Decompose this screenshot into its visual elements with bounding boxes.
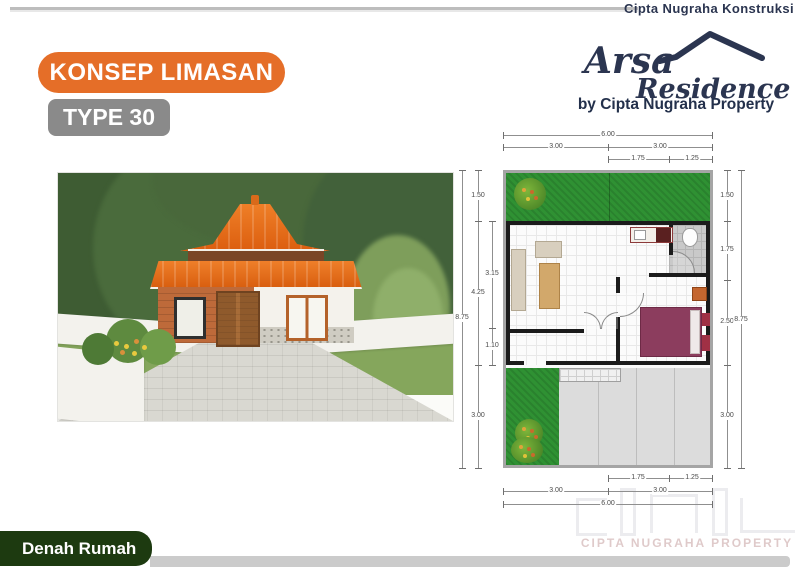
bed-pillows <box>690 310 700 354</box>
dim-label: 3.15 <box>484 270 500 278</box>
dim-label: 3.00 <box>652 143 668 151</box>
wall <box>506 221 710 225</box>
plan-bush <box>511 437 543 463</box>
carport-joint-line <box>598 368 599 465</box>
dimension-tick <box>475 170 482 171</box>
dim-label: 4.25 <box>470 289 486 297</box>
dimension-tick <box>489 365 496 366</box>
dimension-tick <box>608 488 609 495</box>
wall <box>506 329 584 333</box>
dimension-tick <box>724 170 731 171</box>
nightstand <box>702 313 710 326</box>
watermark-logo: CIPTA NUGRAHA PROPERTY <box>572 488 802 554</box>
awning-roof <box>150 261 362 289</box>
nightstand-lamp <box>692 287 707 301</box>
dimension-tick <box>489 221 496 222</box>
dimension-tick <box>738 468 745 469</box>
wooden-front-door <box>216 291 260 347</box>
floor-plan <box>503 170 713 468</box>
dimension-tick <box>669 475 670 482</box>
dim-label: 3.00 <box>548 487 564 495</box>
dimension-tick <box>712 475 713 482</box>
footer-caption: Denah Rumah <box>22 539 136 559</box>
wall <box>506 361 524 365</box>
dimension-tick <box>503 132 504 139</box>
dimension-tick <box>724 221 731 222</box>
dimension-tick <box>712 488 713 495</box>
dim-label: 1.25 <box>684 155 700 163</box>
dimension-tick <box>459 170 466 171</box>
dim-label: 3.00 <box>470 412 486 420</box>
plan-carport <box>559 368 710 465</box>
type-badge: TYPE 30 <box>48 99 170 136</box>
wall <box>649 273 710 277</box>
plan-garden-divider <box>609 173 610 221</box>
nightstand <box>702 335 710 351</box>
dimension-tick <box>503 501 504 508</box>
kitchen-sink <box>634 230 646 240</box>
dim-label: 1.10 <box>484 342 500 350</box>
garden-shrub <box>82 333 114 365</box>
flyer-page: Cipta Nugraha Konstruksi KONSEP LIMASAN … <box>0 0 804 568</box>
dimension-tick <box>712 132 713 139</box>
left-window <box>174 297 206 339</box>
dim-label: 1.75 <box>630 474 646 482</box>
dim-label: 8.75 <box>733 316 749 324</box>
dimension-tick <box>475 365 482 366</box>
armchair <box>535 241 562 258</box>
watermark-text: CIPTA NUGRAHA PROPERTY <box>572 536 802 550</box>
logo-byline: by Cipta Nugraha Property <box>556 96 796 114</box>
watermark-monogram <box>712 488 728 536</box>
dimension-tick <box>724 365 731 366</box>
dim-label: 1.50 <box>470 192 486 200</box>
dim-label: 6.00 <box>600 500 616 508</box>
plan-terrace-step <box>559 368 621 382</box>
watermark-monogram <box>740 498 795 533</box>
watermark-monogram <box>650 494 698 533</box>
concept-badge: KONSEP LIMASAN <box>38 52 285 93</box>
dimension-tick <box>669 156 670 163</box>
carport-joint-line <box>674 368 675 465</box>
dimension-tick <box>608 475 609 482</box>
flower-accents <box>114 341 119 346</box>
dimension-tick <box>475 468 482 469</box>
wall <box>506 225 510 365</box>
wall <box>546 361 710 365</box>
dimension-tick <box>712 501 713 508</box>
dimension-line <box>478 170 479 468</box>
dimension-tick <box>712 156 713 163</box>
dim-label: 3.00 <box>652 487 668 495</box>
dim-label: 6.00 <box>600 131 616 139</box>
dimension-tick <box>489 328 496 329</box>
dim-label: 8.75 <box>454 314 470 322</box>
dim-label: 1.75 <box>719 246 735 254</box>
house-render-image <box>57 172 454 422</box>
dim-label: 1.25 <box>684 474 700 482</box>
coffee-table <box>539 263 560 309</box>
dimension-tick <box>724 468 731 469</box>
watermark-monogram <box>620 488 636 536</box>
roof-finial <box>251 195 259 205</box>
dimension-tick <box>712 144 713 151</box>
upper-limasan-roof <box>180 201 330 251</box>
toilet <box>682 228 698 247</box>
dimension-tick <box>738 170 745 171</box>
wall <box>616 277 620 293</box>
dimension-tick <box>475 221 482 222</box>
dim-label: 1.75 <box>630 155 646 163</box>
right-window <box>286 295 328 341</box>
dimension-tick <box>503 488 504 495</box>
dim-label: 3.00 <box>719 412 735 420</box>
dimension-tick <box>724 280 731 281</box>
plan-bush <box>514 178 546 210</box>
footer-gray-bar <box>150 556 790 567</box>
sofa <box>511 249 526 311</box>
garden-shrub <box>140 329 176 365</box>
dimension-tick <box>503 144 504 151</box>
dim-label: 1.50 <box>719 192 735 200</box>
stove <box>656 228 671 242</box>
dimension-tick <box>608 156 609 163</box>
house-structure <box>150 201 362 341</box>
dimension-tick <box>459 468 466 469</box>
footer-caption-banner: Denah Rumah <box>0 531 152 566</box>
dim-label: 3.00 <box>548 143 564 151</box>
dimension-tick <box>608 144 609 151</box>
header-divider-line <box>10 7 638 10</box>
carport-joint-line <box>636 368 637 465</box>
company-name-top: Cipta Nugraha Konstruksi <box>624 1 794 16</box>
